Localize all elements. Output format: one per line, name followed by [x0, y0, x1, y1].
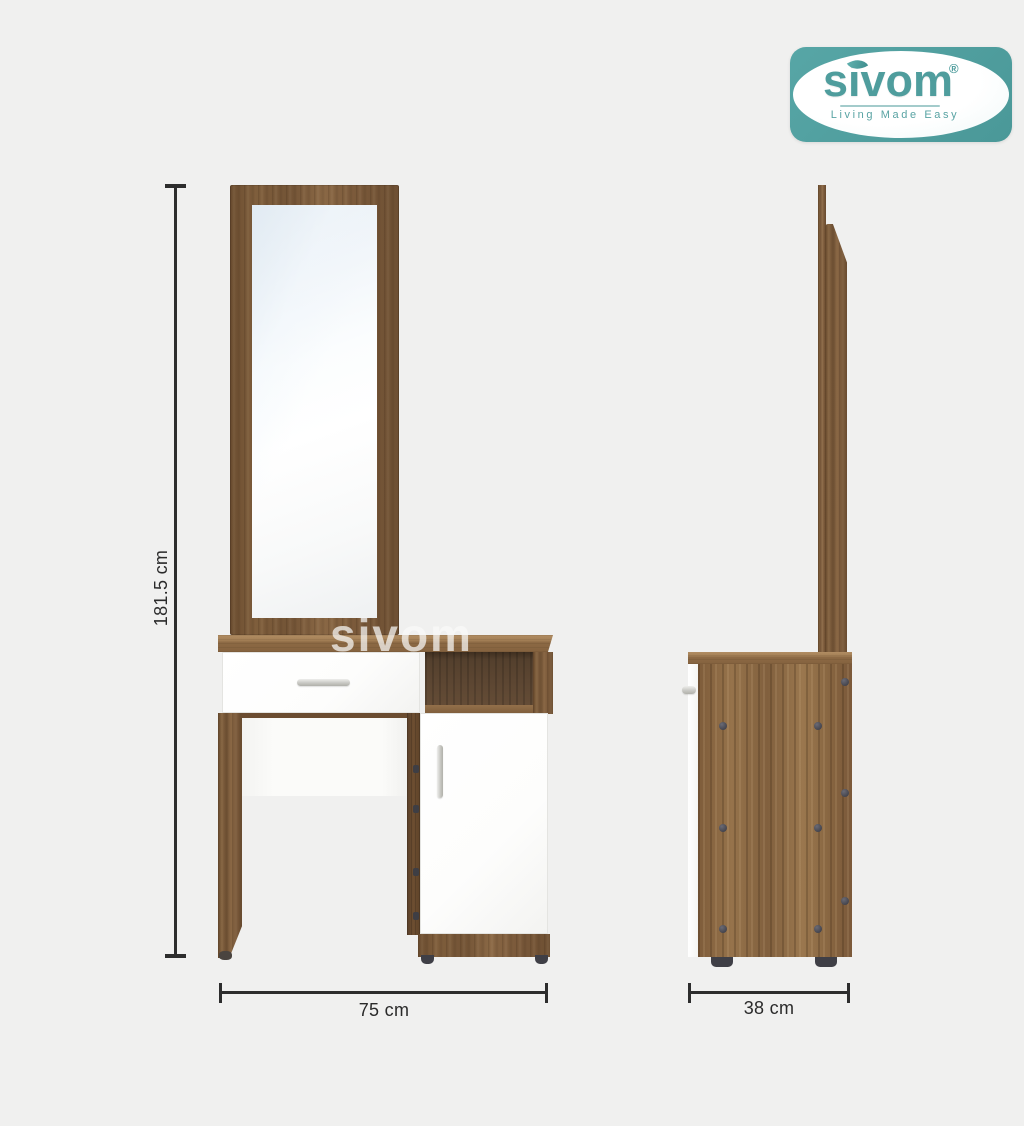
registered-mark: ®: [949, 61, 959, 76]
hinge-cap: [413, 868, 419, 876]
cabinet-foot: [535, 955, 548, 964]
hinge-cap: [413, 765, 419, 773]
width-dim-cap-left: [219, 983, 222, 1003]
brand-name: sivom: [777, 55, 999, 107]
brand-tagline: Living Made Easy: [784, 109, 1006, 121]
product-dimension-diagram: sivom ® Living Made Easy: [0, 0, 1024, 1126]
screw-cap: [841, 678, 849, 686]
hinge-cap: [413, 805, 419, 813]
knee-back-panel: [240, 718, 407, 796]
brand-logo: sivom ® Living Made Easy: [790, 47, 1012, 142]
cabinet-door-handle: [437, 745, 443, 798]
logo-divider: [840, 105, 940, 107]
height-dim-line: [174, 186, 177, 956]
cabinet-plinth: [418, 934, 550, 957]
mirror-glass: [252, 205, 377, 618]
screw-cap: [719, 722, 727, 730]
cabinet-side-panel: [698, 664, 852, 957]
depth-dim-cap-right: [847, 983, 850, 1003]
depth-dim-label: 38 cm: [709, 998, 829, 1019]
drawer-handle: [297, 679, 350, 686]
side-foot: [815, 957, 837, 967]
depth-dim-cap-left: [688, 983, 691, 1003]
width-dim-label: 75 cm: [324, 1000, 444, 1021]
width-dim-cap-right: [545, 983, 548, 1003]
tabletop-front: [218, 635, 553, 652]
left-leg-foot: [219, 951, 232, 960]
hinge-cap: [413, 912, 419, 920]
screw-cap: [841, 897, 849, 905]
tabletop-side: [688, 652, 852, 664]
height-dim-cap-bottom: [165, 954, 186, 958]
screw-cap: [719, 925, 727, 933]
height-dim-cap-top: [165, 184, 186, 188]
left-leg: [218, 713, 242, 958]
screw-cap: [841, 789, 849, 797]
cabinet-side-partition: [407, 713, 420, 935]
mirror-frame-edge: [818, 185, 826, 652]
height-dim-label: 181.5 cm: [151, 508, 173, 668]
cabinet-foot: [421, 955, 434, 964]
width-dim-line: [221, 991, 547, 994]
open-shelf-interior: [425, 652, 533, 705]
side-view-handle: [682, 686, 696, 694]
screw-cap: [814, 925, 822, 933]
screw-cap: [719, 824, 727, 832]
screw-cap: [814, 722, 822, 730]
depth-dim-line: [690, 991, 850, 994]
side-foot: [711, 957, 733, 967]
screw-cap: [814, 824, 822, 832]
shelf-side-panel: [533, 652, 553, 714]
mirror-support-plank: [825, 224, 847, 652]
